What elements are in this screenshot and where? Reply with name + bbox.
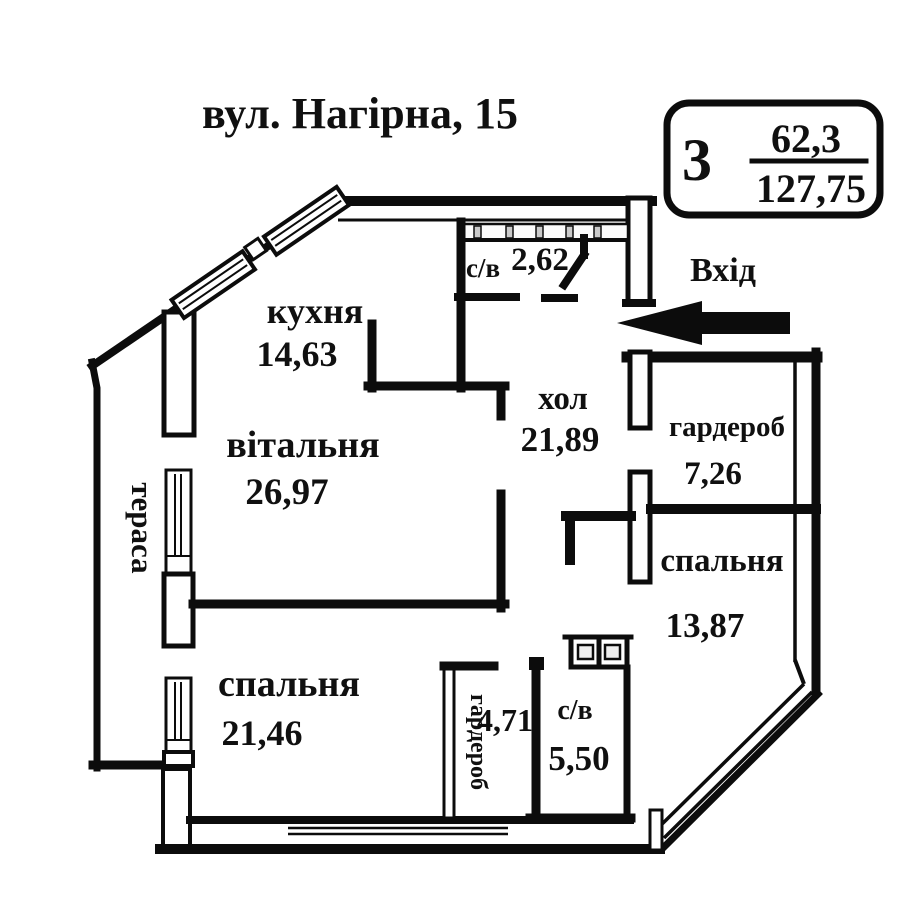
vent-shaft (565, 637, 631, 667)
room-area: 14,63 (257, 334, 338, 374)
wall (650, 810, 662, 850)
bay-window (664, 692, 812, 838)
entrance-arrow-icon (617, 301, 790, 345)
wall (444, 664, 454, 818)
room-area: 5,50 (548, 739, 609, 778)
room-bedroom-bottom: спальня 21,46 (218, 663, 360, 753)
wall (164, 752, 193, 766)
room-wardrobe-bottom: гардероб 4,71 (465, 694, 533, 790)
floor-plan: вул. Нагірна, 15 3 62,3 127,75 (0, 0, 897, 900)
room-area: 7,26 (684, 456, 742, 492)
wall (92, 362, 97, 768)
wall (630, 472, 650, 582)
apartment-badge: 3 62,3 127,75 (667, 103, 880, 215)
room-wardrobe-right: гардероб 7,26 (669, 411, 785, 492)
wall (662, 694, 818, 849)
room-label: гардероб (669, 411, 785, 443)
page-title: вул. Нагірна, 15 (202, 89, 518, 138)
room-terrace: тераса (125, 482, 160, 574)
wall (164, 312, 194, 435)
room-bedroom-right: спальня 13,87 (660, 543, 783, 645)
entrance-label: Вхід (690, 252, 756, 289)
room-label: спальня (660, 543, 783, 579)
room-hall: хол 21,89 (521, 381, 600, 459)
room-living: вітальня 26,97 (226, 424, 379, 513)
room-area: 2,62 (511, 242, 569, 278)
room-kitchen: кухня 14,63 (257, 291, 364, 374)
room-label: с/в (557, 695, 592, 726)
bay-window (656, 684, 804, 830)
room-label: вітальня (226, 424, 379, 466)
wall (795, 660, 804, 684)
room-area: 26,97 (245, 472, 328, 513)
badge-total-area: 127,75 (756, 166, 866, 211)
room-area: 13,87 (666, 606, 745, 645)
wall (630, 352, 650, 428)
window (166, 678, 191, 752)
room-label: спальня (218, 663, 360, 705)
window (166, 470, 191, 574)
room-label: хол (538, 381, 588, 417)
room-label: тераса (125, 482, 160, 574)
left-wall-windows (164, 312, 194, 766)
badge-living-area: 62,3 (771, 116, 841, 161)
window (462, 224, 628, 240)
wall (164, 574, 193, 646)
wall (628, 198, 650, 304)
room-label: кухня (267, 291, 363, 331)
wall (529, 657, 544, 670)
room-bath-top: с/в 2,62 (466, 242, 569, 283)
room-label: с/в (466, 253, 500, 283)
room-area: 21,89 (521, 420, 600, 459)
wall (163, 769, 190, 850)
badge-rooms: 3 (682, 127, 712, 193)
floor-plan-page: вул. Нагірна, 15 3 62,3 127,75 (0, 0, 897, 900)
room-bath-bottom: с/в 5,50 (548, 695, 609, 778)
room-area: 21,46 (222, 713, 303, 753)
room-area: 4,71 (477, 702, 533, 738)
window (288, 828, 508, 834)
